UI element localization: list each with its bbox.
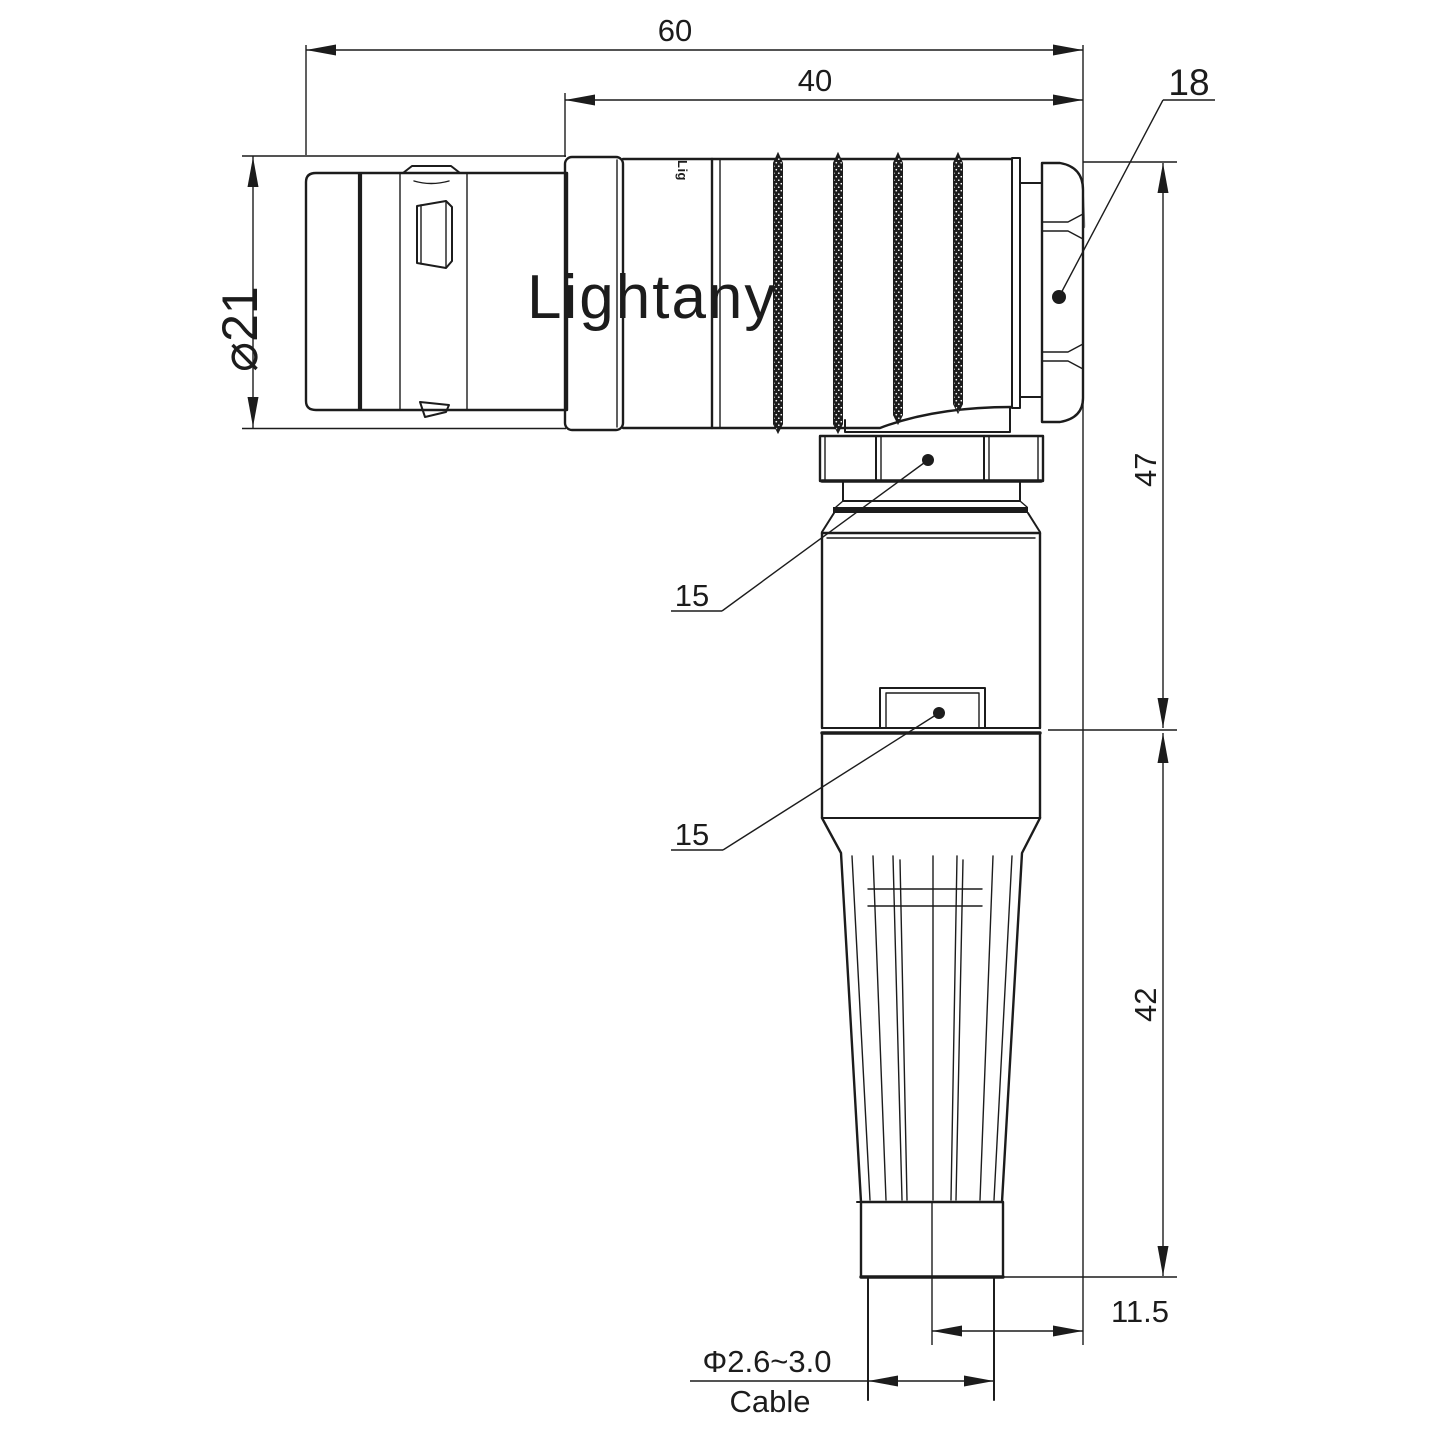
latch-window	[880, 688, 985, 728]
dim-cable-diameter-label: Φ2.6~3.0	[702, 1344, 831, 1379]
dimensions: 60 40 ⌀21 47	[212, 13, 1215, 1419]
knurl-section	[774, 153, 963, 433]
strain-relief-webs	[868, 889, 982, 906]
dim-body-length-label: 40	[798, 63, 832, 98]
dim-overall-length-label: 60	[658, 13, 692, 48]
dim-plug-diameter-label: ⌀21	[212, 286, 268, 372]
knurl-band	[834, 153, 843, 433]
callout-backnut-label: 18	[1168, 62, 1209, 103]
end-cap	[857, 1202, 1003, 1277]
elbow-down-section	[820, 436, 1043, 1400]
knurl-band	[954, 153, 963, 413]
bayonet-pin	[417, 201, 452, 268]
dimension-upper-height: 47	[1083, 162, 1177, 728]
callout-coupling-nut-label: 15	[675, 578, 709, 613]
dim-cable-word-label: Cable	[730, 1384, 811, 1419]
elbow-body	[822, 533, 1040, 818]
dimension-cap-offset: 11.5	[932, 1277, 1169, 1345]
dimension-lower-height: 42	[1004, 730, 1177, 1277]
dimension-cable: Φ2.6~3.0 Cable	[690, 1344, 994, 1419]
knurl-band	[894, 153, 903, 424]
top-notch	[403, 166, 460, 184]
technical-drawing: Lightany	[0, 0, 1440, 1440]
dimension-plug-diameter: ⌀21	[212, 156, 566, 429]
retaining-plate	[1012, 158, 1042, 408]
dim-cap-offset-label: 11.5	[1111, 1294, 1169, 1329]
shell-logo: Lig	[675, 160, 690, 181]
callout-backnut: 18	[1052, 62, 1215, 304]
dim-upper-height-label: 47	[1128, 453, 1163, 487]
drawing-canvas: Lightany	[0, 0, 1440, 1440]
dimension-body-length: 40	[565, 63, 1083, 157]
callout-latch-label: 15	[675, 817, 709, 852]
knurl-band	[774, 153, 783, 433]
strain-relief	[822, 818, 1040, 1202]
shoulder	[822, 513, 1040, 538]
dimension-overall-length: 60	[306, 13, 1083, 155]
dim-lower-height-label: 42	[1128, 988, 1163, 1022]
